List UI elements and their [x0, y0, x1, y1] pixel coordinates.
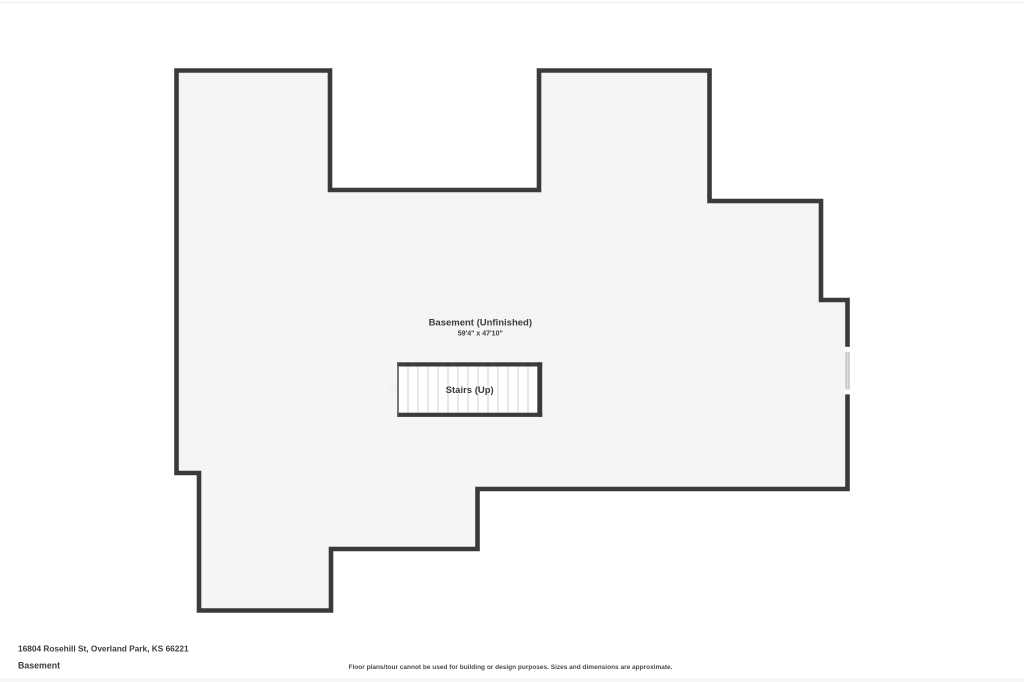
svg-text:Floor plans/tour cannot be use: Floor plans/tour cannot be used for buil… — [349, 664, 673, 671]
svg-text:59'4" x 47'10": 59'4" x 47'10" — [458, 331, 503, 338]
svg-text:16804 Rosehill St, Overland Pa: 16804 Rosehill St, Overland Park, KS 662… — [18, 644, 189, 654]
svg-text:Stairs (Up): Stairs (Up) — [446, 385, 494, 396]
svg-text:Basement (Unfinished): Basement (Unfinished) — [429, 318, 532, 329]
svg-text:Basement: Basement — [18, 661, 60, 671]
